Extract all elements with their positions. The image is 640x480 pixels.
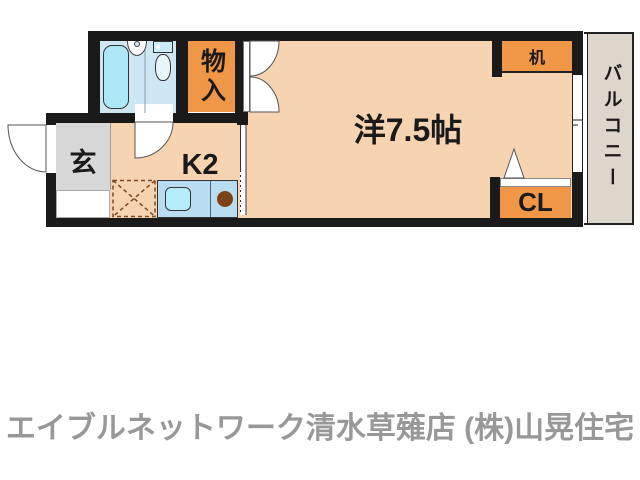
- window-sash-marks: [572, 120, 583, 125]
- storage-double-door-bottom-arc: [250, 77, 279, 112]
- entrance-door-arc: [8, 125, 46, 172]
- desk-label: 机: [502, 46, 572, 66]
- storage-label: 物入: [188, 45, 235, 109]
- balcony-label: バルコニー: [590, 48, 632, 208]
- kitchen-sink: [165, 187, 191, 211]
- kitchen-counter: [157, 180, 238, 218]
- storage-double-door-top-arc: [250, 41, 279, 76]
- floor-plan-page: 玄 K2 物入 洋7.5帖 机 CL バルコニー エイブルネットワーク清水草薙店…: [0, 0, 640, 480]
- counter-divider: [210, 181, 211, 217]
- kitchen-label: K2: [155, 148, 245, 182]
- main-room-label: 洋7.5帖: [244, 108, 572, 148]
- toilet-tank: [153, 41, 173, 53]
- entrance-label: 玄: [56, 143, 110, 177]
- closet-folding-door: [504, 149, 524, 178]
- refrigerator-space: [113, 181, 155, 217]
- toilet-flush-knob: [156, 45, 160, 49]
- closet-label: CL: [500, 187, 571, 217]
- basin-faucet: [134, 41, 140, 47]
- bathtub: [103, 45, 129, 109]
- toilet-bowl: [155, 54, 171, 81]
- stove-burner: [217, 191, 233, 207]
- agency-name: エイブルネットワーク清水草薙店 (株)山晃住宅: [0, 406, 640, 444]
